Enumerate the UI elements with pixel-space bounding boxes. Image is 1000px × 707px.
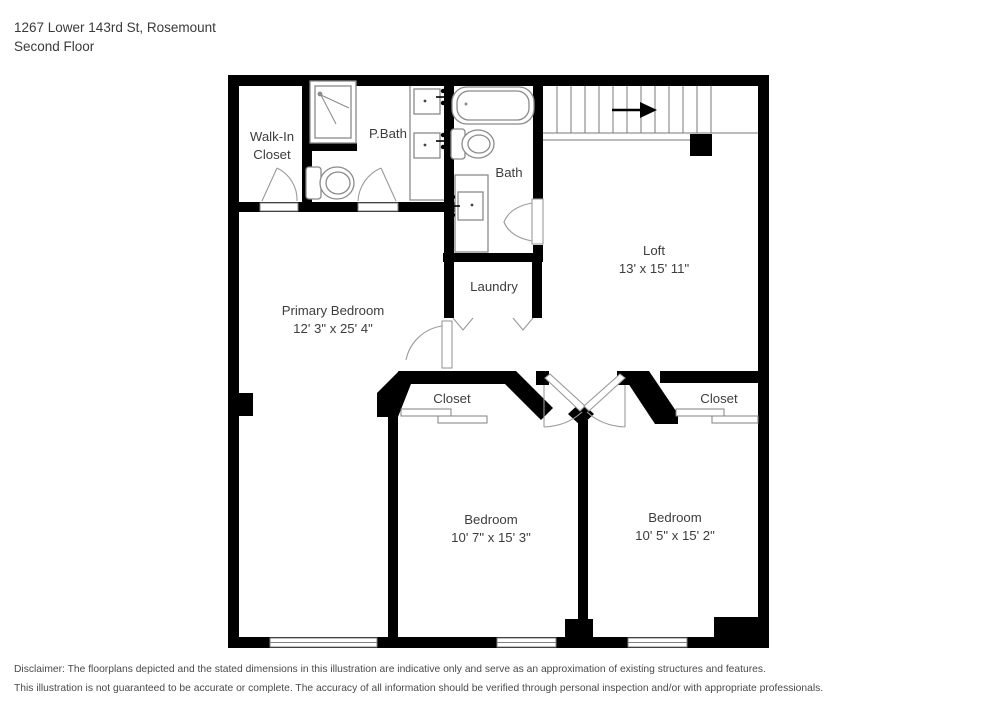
faucet-dot bbox=[441, 145, 445, 149]
label-bedroom-right: Bedroom bbox=[648, 510, 702, 525]
wall-left bbox=[228, 75, 239, 648]
bedroom-right-door bbox=[584, 374, 625, 427]
vanity-counter-edge bbox=[410, 86, 444, 200]
bath-toilet-symbol bbox=[451, 129, 494, 159]
pbath-door bbox=[358, 168, 396, 201]
sink-drain bbox=[424, 144, 427, 147]
closet-right-band bbox=[660, 371, 758, 383]
pillar-bottom-right bbox=[714, 617, 758, 648]
pbath-double-vanity-symbol bbox=[410, 86, 446, 200]
wall-laundry-right bbox=[532, 262, 542, 318]
label-bedroom-left-dims: 10' 7" x 15' 3" bbox=[451, 530, 531, 545]
pbath-shower-symbol bbox=[310, 81, 356, 143]
wall-primary-bedroom-divider bbox=[388, 417, 398, 648]
pillar-left-wall bbox=[235, 393, 253, 416]
label-bedroom-left: Bedroom bbox=[464, 512, 518, 527]
door-leaf bbox=[584, 374, 625, 411]
faucet-dot bbox=[451, 213, 455, 217]
label-primary-bedroom: Primary Bedroom bbox=[282, 303, 385, 318]
sliding-door-panel bbox=[438, 416, 487, 423]
arrow-head bbox=[640, 102, 657, 118]
label-walkin-closet-line1: Walk-In bbox=[250, 129, 294, 144]
bifold-door-mark bbox=[453, 318, 473, 330]
stair-newel-post bbox=[690, 134, 712, 156]
faucet-dot bbox=[441, 89, 445, 93]
label-laundry: Laundry bbox=[470, 279, 518, 294]
label-closet-right: Closet bbox=[700, 391, 738, 406]
label-bath: Bath bbox=[495, 165, 522, 180]
primary-bedroom-door bbox=[406, 321, 452, 368]
door-leaf bbox=[532, 199, 543, 244]
label-bedroom-right-dims: 10' 5" x 15' 2" bbox=[635, 528, 715, 543]
bifold-door-mark bbox=[513, 318, 533, 330]
pillar-bedrooms-base bbox=[565, 619, 593, 648]
door-swing-arc bbox=[406, 326, 442, 360]
sliding-door-panel bbox=[401, 409, 451, 416]
bath-vanity-symbol bbox=[450, 175, 488, 252]
wall-right bbox=[758, 75, 769, 648]
label-walkin-closet-line2: Closet bbox=[253, 147, 291, 162]
threshold-pbath-door bbox=[358, 203, 398, 211]
wall-bedrooms-divider bbox=[578, 420, 588, 648]
wall-laundry-top bbox=[443, 253, 543, 262]
door-swing-arc bbox=[358, 168, 381, 201]
shower-outer bbox=[310, 81, 356, 143]
vanity-sink bbox=[414, 89, 440, 114]
door-leaf-line bbox=[262, 168, 277, 201]
label-primary-bedroom-dims: 12' 3" x 25' 4" bbox=[293, 321, 373, 336]
label-closet-left: Closet bbox=[433, 391, 471, 406]
stair-direction-arrow-icon bbox=[612, 102, 657, 118]
wall-shower-halfwall bbox=[309, 143, 357, 151]
label-pbath: P.Bath bbox=[369, 126, 407, 141]
wall-bath-loft-upper bbox=[533, 75, 543, 202]
closet-left-sliding-doors bbox=[401, 409, 487, 423]
pbath-toilet-symbol bbox=[306, 167, 354, 199]
vanity-sink bbox=[414, 133, 440, 158]
tub-drain bbox=[465, 103, 468, 106]
toilet-bowl bbox=[462, 130, 494, 158]
faucet-dot bbox=[441, 101, 445, 105]
label-loft: Loft bbox=[643, 243, 665, 258]
disclaimer: Disclaimer: The floorplans depicted and … bbox=[14, 660, 823, 698]
vanity-sink bbox=[458, 192, 483, 220]
sliding-door-panel bbox=[676, 409, 724, 416]
laundry-bifold-doors bbox=[453, 318, 533, 330]
closet-right-sliding-doors bbox=[676, 409, 758, 423]
door-swing-arc bbox=[504, 203, 532, 241]
threshold-walkin-door bbox=[260, 203, 298, 211]
floorplan-page: 1267 Lower 143rd St, Rosemount Second Fl… bbox=[0, 0, 1000, 707]
faucet-dot bbox=[441, 133, 445, 137]
label-loft-dims: 13' x 15' 11" bbox=[619, 261, 690, 276]
floorplan-drawing: Walk-In Closet P.Bath Bath Loft 13' x 15… bbox=[0, 0, 1000, 707]
door-leaf bbox=[545, 374, 585, 411]
disclaimer-line2: This illustration is not guaranteed to b… bbox=[14, 679, 823, 698]
disclaimer-line1: Disclaimer: The floorplans depicted and … bbox=[14, 660, 823, 679]
door-leaf-line bbox=[381, 168, 396, 201]
walkin-closet-door bbox=[262, 168, 297, 201]
door-leaf bbox=[442, 321, 452, 368]
toilet-tank bbox=[306, 167, 321, 199]
sliding-door-panel bbox=[712, 416, 758, 423]
bath-door bbox=[504, 199, 543, 244]
door-swing-arc bbox=[277, 168, 297, 201]
faucet-dot bbox=[451, 195, 455, 199]
walls bbox=[228, 75, 769, 648]
bath-tub-symbol bbox=[452, 87, 534, 124]
sink-drain bbox=[471, 204, 474, 207]
sink-drain bbox=[424, 100, 427, 103]
staircase bbox=[543, 86, 758, 140]
